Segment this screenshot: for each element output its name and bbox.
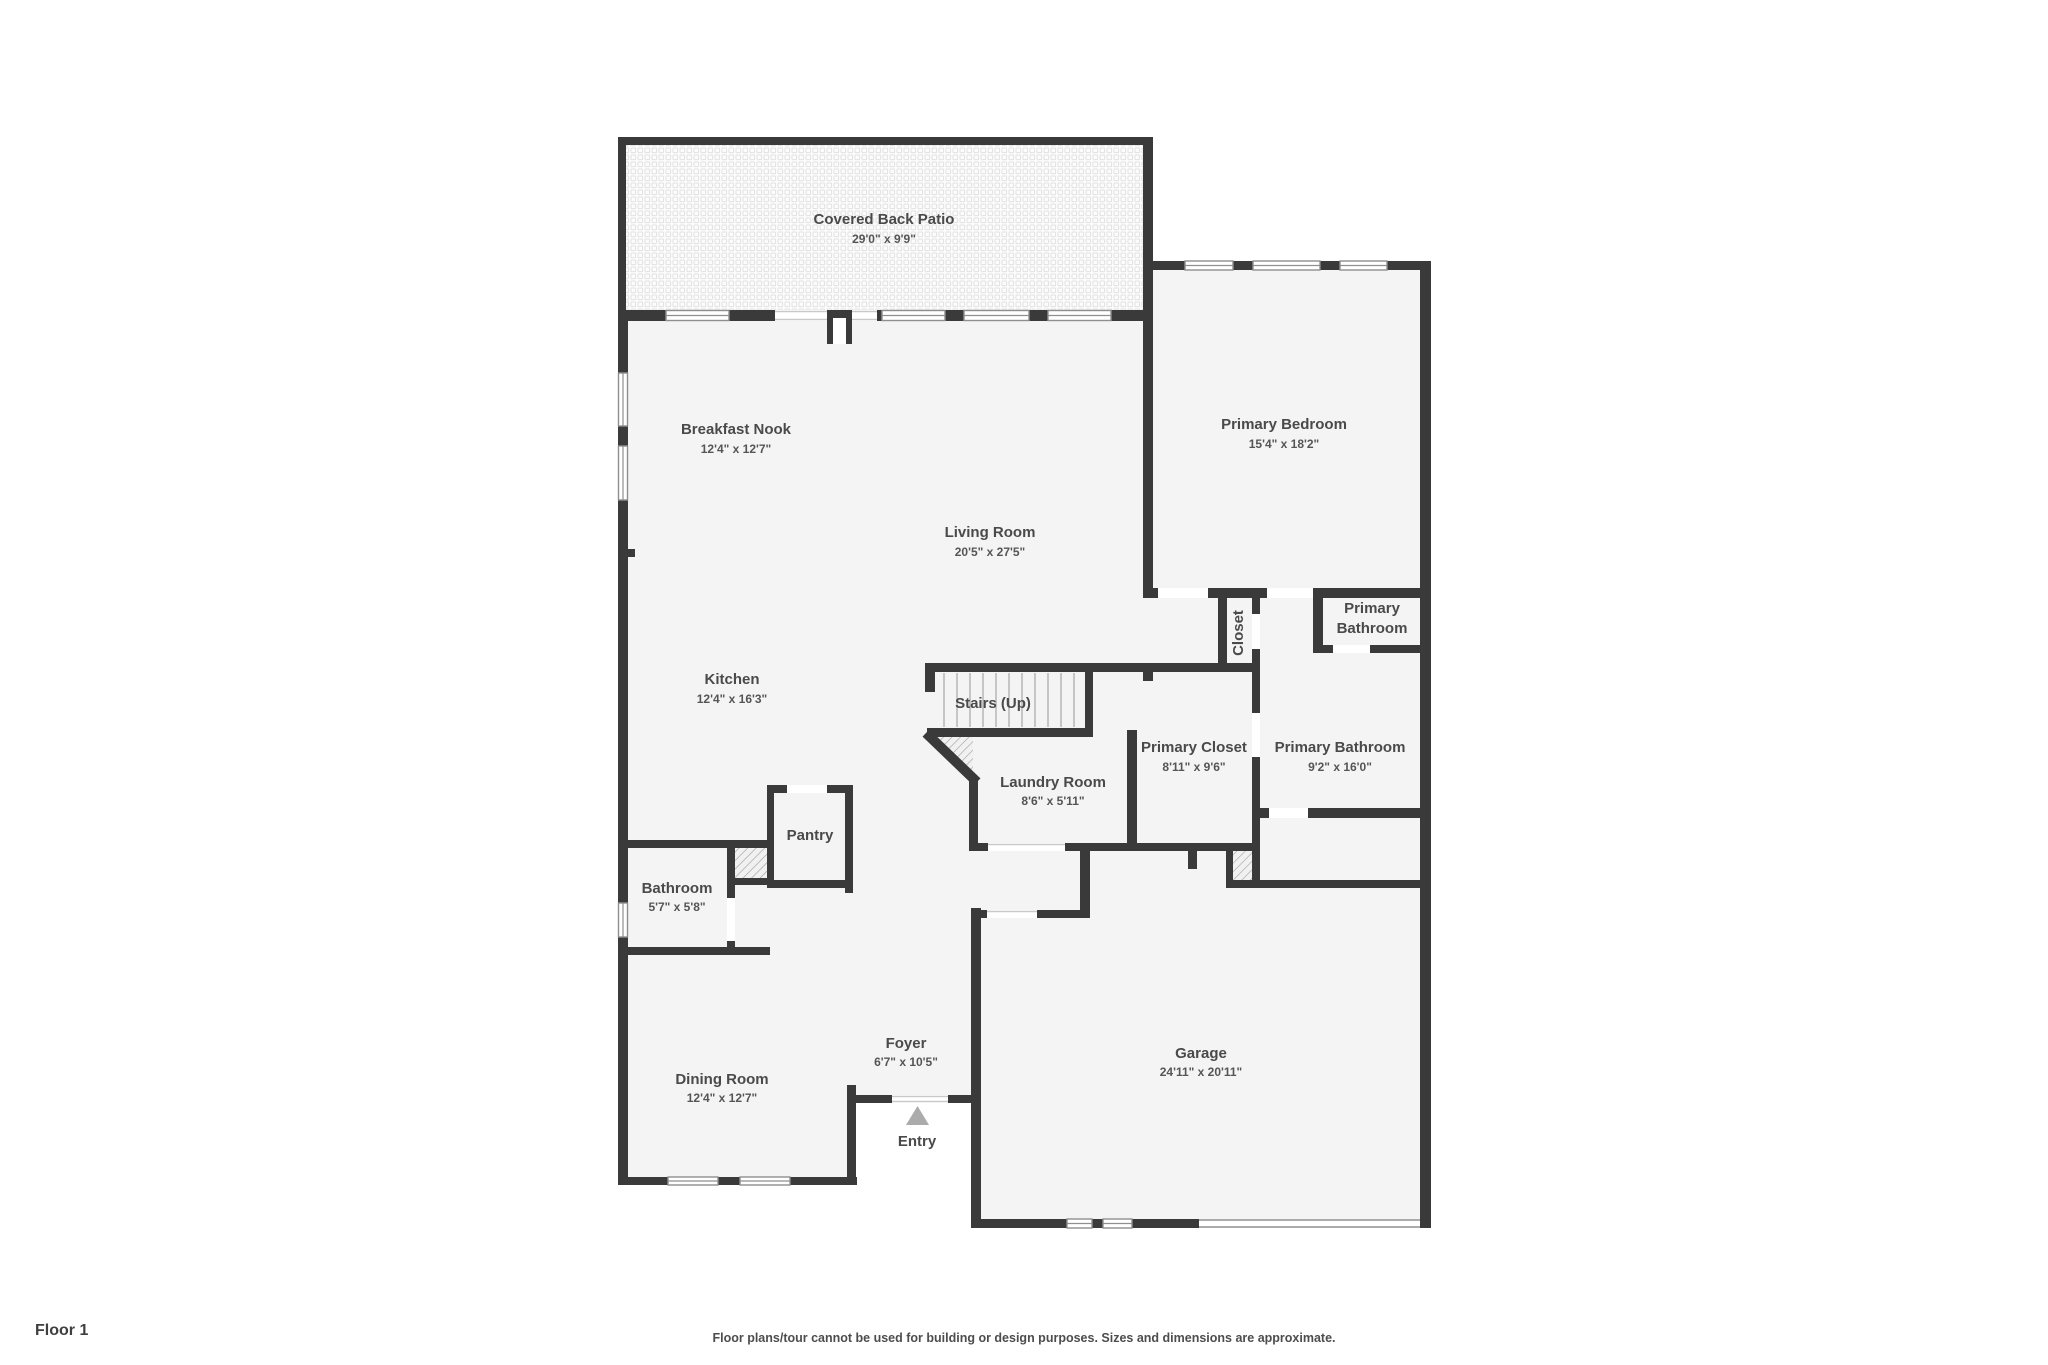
- room-dims-covered-back-patio: 29'0" x 9'9": [852, 232, 916, 246]
- room-label-primary-bathroom-upper-line2: Bathroom: [1337, 620, 1408, 637]
- room-label-living-room: Living Room: [945, 524, 1036, 541]
- floor-plan-drawing: Covered Back Patio 29'0" x 9'9" Primary …: [0, 0, 2048, 1365]
- room-dims-living-room: 20'5" x 27'5": [955, 545, 1025, 559]
- room-label-stairs: Stairs (Up): [955, 695, 1031, 712]
- entry-direction-icon: [906, 1106, 929, 1125]
- room-label-bathroom: Bathroom: [642, 880, 713, 897]
- floor-plan-page: Covered Back Patio 29'0" x 9'9" Primary …: [0, 0, 2048, 1365]
- room-label-kitchen: Kitchen: [704, 671, 759, 688]
- room-label-primary-bedroom: Primary Bedroom: [1221, 416, 1347, 433]
- room-label-laundry-room: Laundry Room: [1000, 774, 1106, 791]
- linen-hatch-cell: [735, 848, 767, 878]
- room-label-primary-bathroom: Primary Bathroom: [1275, 739, 1406, 756]
- room-dims-primary-bedroom: 15'4" x 18'2": [1249, 437, 1319, 451]
- room-dims-primary-closet: 8'11" x 9'6": [1162, 760, 1225, 774]
- room-dims-primary-bathroom: 9'2" x 16'0": [1308, 760, 1372, 774]
- room-label-covered-back-patio: Covered Back Patio: [814, 211, 955, 228]
- utility-hatch-cell: [1233, 851, 1252, 880]
- room-label-entry: Entry: [898, 1133, 937, 1150]
- room-dims-laundry-room: 8'6" x 5'11": [1021, 794, 1084, 808]
- disclaimer-text: Floor plans/tour cannot be used for buil…: [0, 1331, 2048, 1345]
- room-dims-garage: 24'11" x 20'11": [1160, 1065, 1243, 1079]
- room-area-covered-back-patio: [620, 139, 1149, 317]
- room-dims-breakfast-nook: 12'4" x 12'7": [701, 442, 771, 456]
- room-dims-foyer: 6'7" x 10'5": [874, 1055, 938, 1069]
- room-label-foyer: Foyer: [886, 1035, 927, 1052]
- garage-door: [1199, 1219, 1420, 1228]
- room-label-garage: Garage: [1175, 1045, 1227, 1062]
- room-label-primary-closet: Primary Closet: [1141, 739, 1247, 756]
- room-label-pantry: Pantry: [787, 827, 834, 844]
- room-label-dining-room: Dining Room: [675, 1071, 768, 1088]
- room-label-closet: Closet: [1230, 610, 1247, 656]
- room-dims-kitchen: 12'4" x 16'3": [697, 692, 767, 706]
- room-dims-dining-room: 12'4" x 12'7": [687, 1091, 757, 1105]
- room-label-breakfast-nook: Breakfast Nook: [681, 421, 792, 438]
- room-label-primary-bathroom-upper-line1: Primary: [1344, 600, 1401, 617]
- room-dims-bathroom: 5'7" x 5'8": [648, 900, 705, 914]
